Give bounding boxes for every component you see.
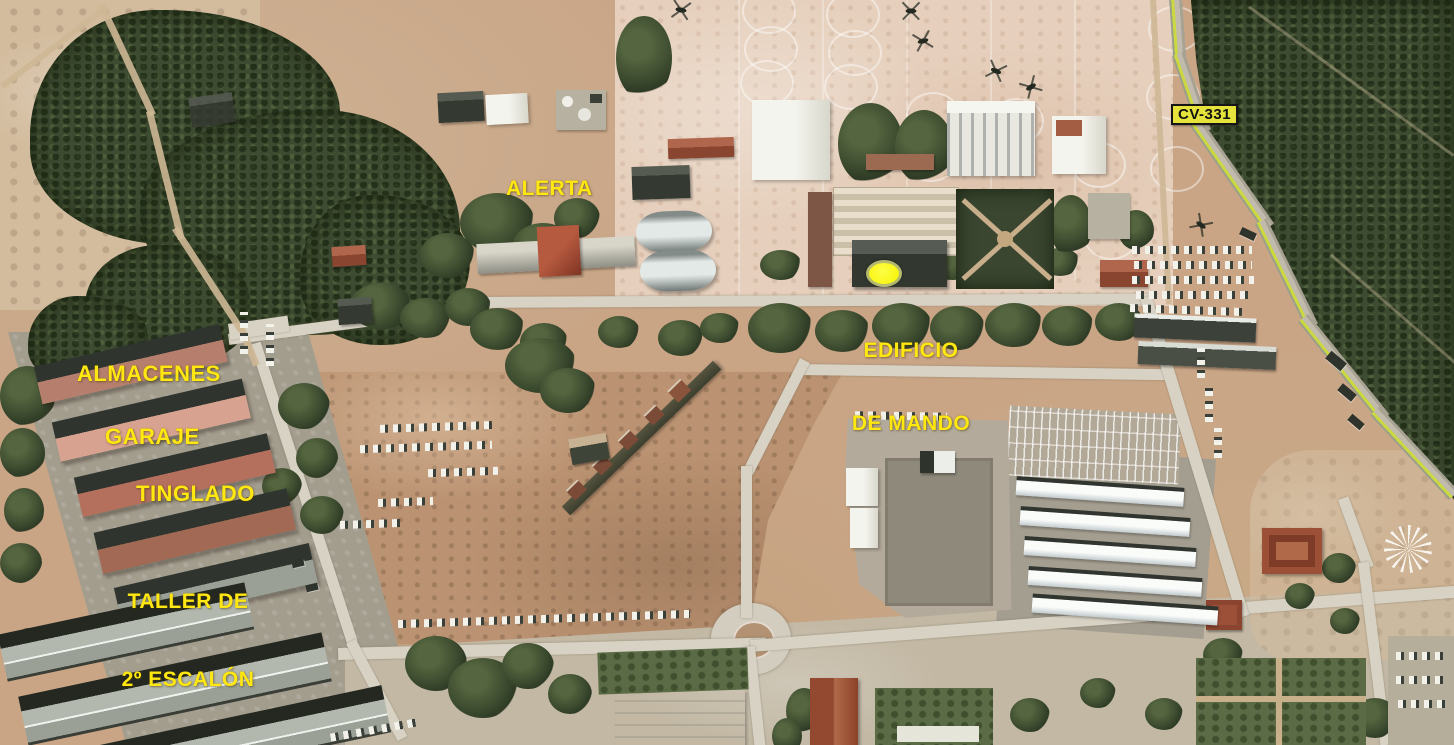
edificio-de-mando-marker xyxy=(866,260,902,287)
label-taller-2-escalon: TALLER DE 2º ESCALÓN xyxy=(110,536,266,745)
label-garaje: GARAJE xyxy=(105,424,200,449)
label-edificio-line1: EDIFICIO xyxy=(826,339,996,363)
satellite-map: ALERTA EDIFICIO DE MANDO ALMACENES GARAJ… xyxy=(0,0,1454,745)
label-edificio-de-mando: EDIFICIO DE MANDO xyxy=(826,291,996,484)
label-alerta: ALERTA xyxy=(506,177,593,201)
label-almacenes: ALMACENES xyxy=(77,361,221,386)
road-badge-cv-331: CV-331 xyxy=(1171,104,1238,125)
annotations-layer: ALERTA EDIFICIO DE MANDO ALMACENES GARAJ… xyxy=(0,0,1454,745)
label-tinglado: TINGLADO xyxy=(136,481,255,506)
label-taller-line2: 2º ESCALÓN xyxy=(110,667,266,693)
label-taller-line1: TALLER DE xyxy=(110,589,266,615)
label-edificio-line2: DE MANDO xyxy=(826,412,996,436)
